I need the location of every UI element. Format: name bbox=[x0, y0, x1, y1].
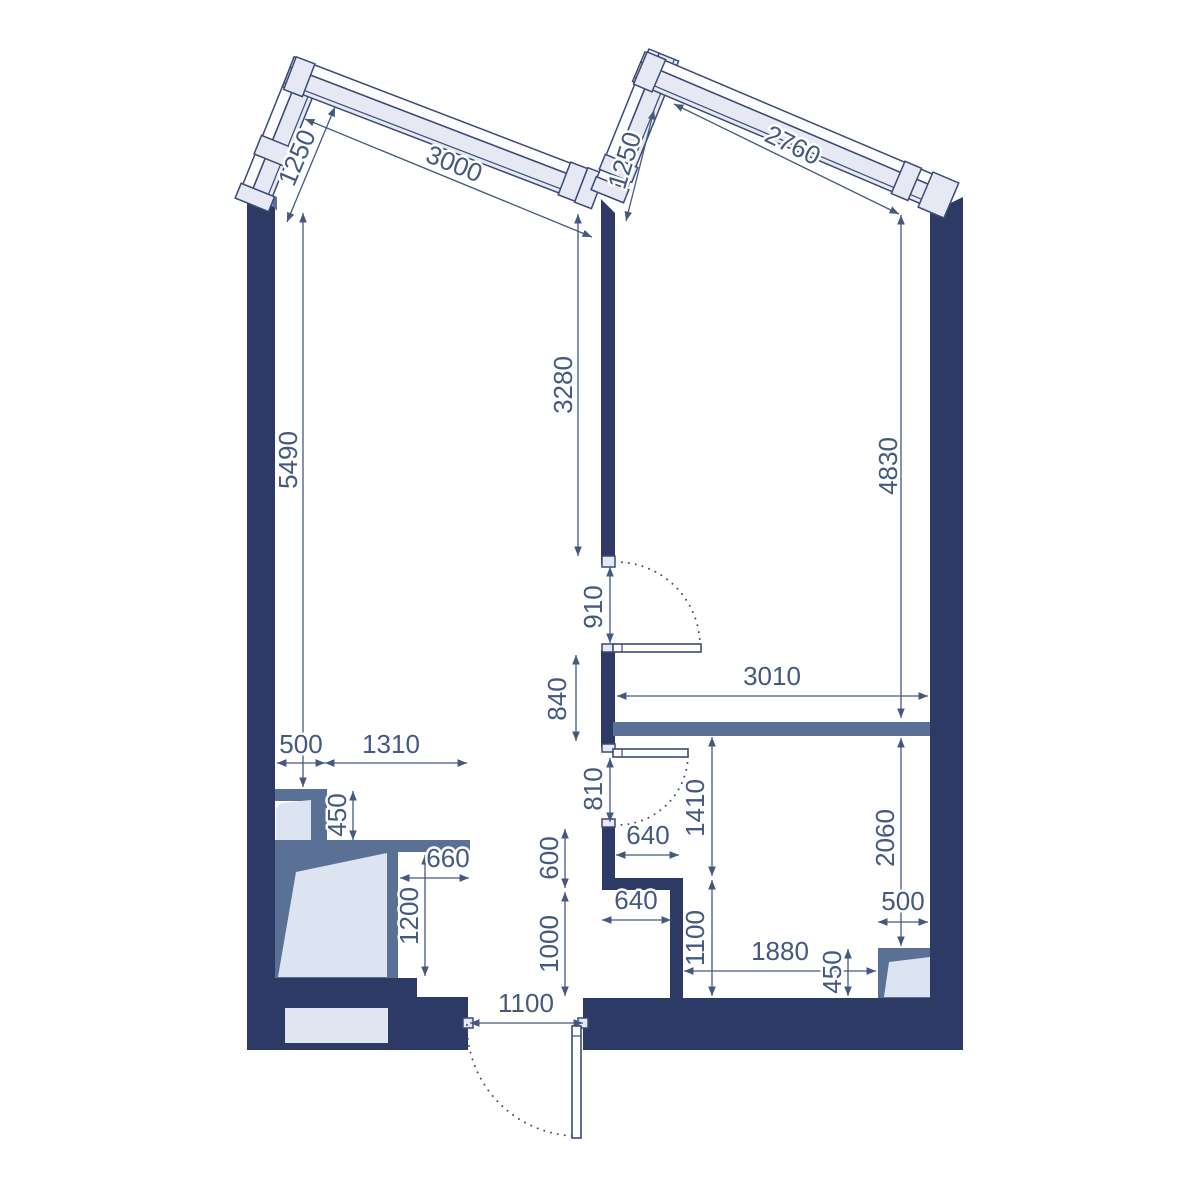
dim-label-1000: 1000 bbox=[534, 915, 564, 973]
dim-label-810: 810 bbox=[578, 767, 608, 810]
floor-plan-drawing: 1250 3000 1250 2760 5490 3280 4830 910 8… bbox=[0, 0, 1200, 1200]
entrance-door-leaf bbox=[572, 1026, 581, 1138]
door-leaf-bedroom bbox=[613, 749, 688, 757]
small-shaft-duct bbox=[276, 800, 311, 840]
dim-label-5490: 5490 bbox=[273, 431, 303, 489]
dim-label-4830: 4830 bbox=[873, 437, 903, 495]
center-partition-wall bbox=[601, 199, 615, 563]
floor-plan-page: 1250 3000 1250 2760 5490 3280 4830 910 8… bbox=[0, 0, 1200, 1200]
dim-label-1250-right: 1250 bbox=[602, 128, 648, 192]
dim-label-1100-entrance: 1100 bbox=[498, 988, 554, 1018]
dim-label-450-left: 450 bbox=[322, 793, 352, 836]
dim-label-1880: 1880 bbox=[751, 936, 809, 966]
windows bbox=[235, 49, 959, 218]
dim-label-640-bottom: 640 bbox=[614, 885, 657, 915]
door-swing-bedroom bbox=[617, 756, 688, 825]
dim-label-450-right: 450 bbox=[817, 950, 847, 993]
door-jamb bbox=[602, 556, 615, 567]
door-pier-wall bbox=[601, 650, 615, 747]
glazing-strip bbox=[641, 52, 934, 185]
door-swing-living bbox=[616, 562, 700, 646]
dim-label-2060: 2060 bbox=[870, 809, 900, 867]
left-exterior-wall bbox=[247, 194, 275, 1050]
entrance-door-swing bbox=[467, 1025, 578, 1136]
dim-label-3010: 3010 bbox=[743, 661, 801, 691]
dim-label-500-left: 500 bbox=[279, 729, 322, 759]
dim-label-1310: 1310 bbox=[362, 729, 420, 759]
bottom-right-exterior-wall bbox=[583, 998, 963, 1050]
dim-label-910: 910 bbox=[578, 585, 608, 628]
dim-label-500-right: 500 bbox=[881, 886, 924, 916]
dim-label-600: 600 bbox=[534, 836, 564, 879]
dim-label-1100-vert: 1100 bbox=[680, 910, 710, 966]
dim-label-840: 840 bbox=[542, 677, 572, 720]
dim-label-1200: 1200 bbox=[394, 887, 424, 945]
bottom-wall-hatch bbox=[285, 1008, 388, 1043]
dim-label-640-top: 640 bbox=[626, 820, 669, 850]
dim-label-660: 660 bbox=[426, 843, 469, 873]
dim-label-1410: 1410 bbox=[680, 779, 710, 837]
corner-shaft-duct bbox=[884, 957, 930, 997]
window-band-left-long bbox=[281, 55, 604, 209]
door-jamb bbox=[602, 819, 615, 827]
door-leaf-living bbox=[613, 644, 701, 652]
right-exterior-wall bbox=[930, 197, 963, 1050]
dim-label-3280: 3280 bbox=[548, 356, 578, 414]
bedroom-partition-wall bbox=[613, 722, 930, 736]
